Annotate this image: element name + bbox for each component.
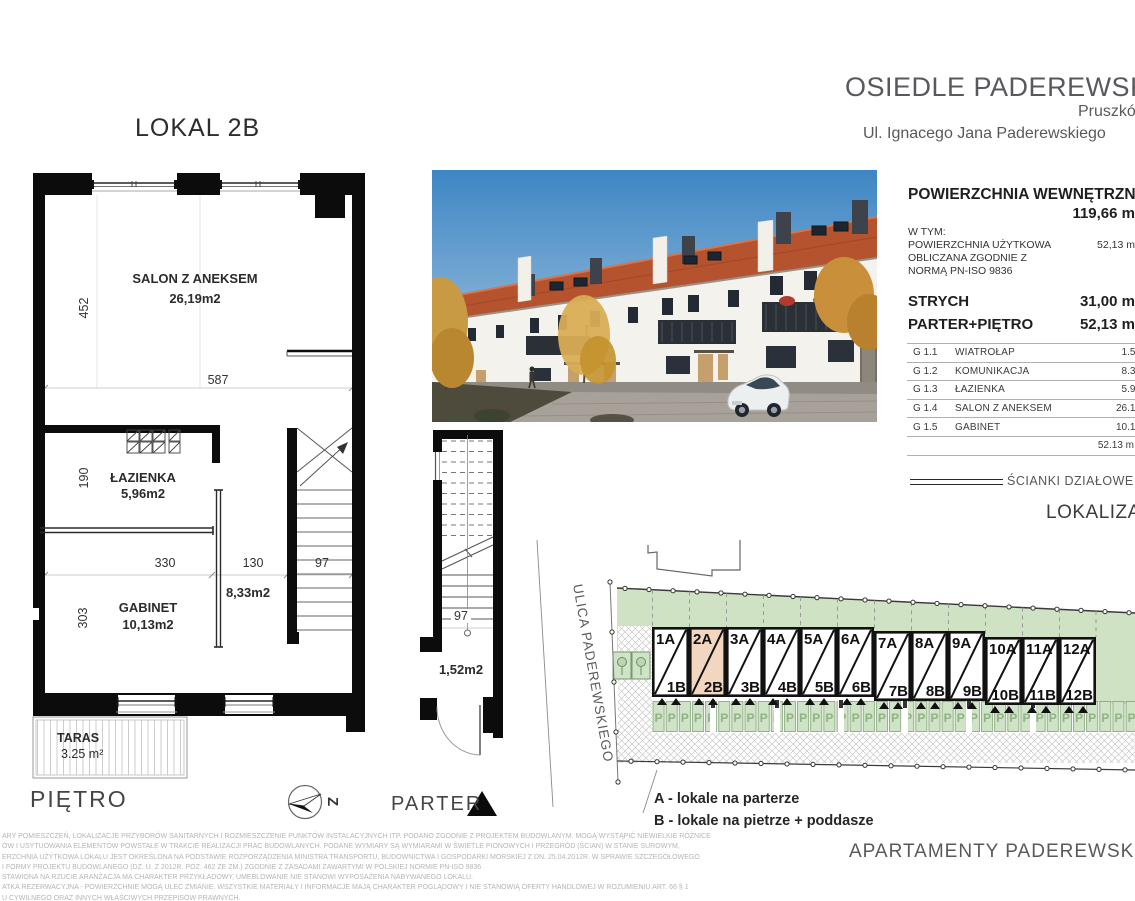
project-title: OSIEDLE PADEREWSKIEGO xyxy=(845,72,1135,103)
site-legend-a: A - lokale na parterze xyxy=(654,791,799,807)
parter-pietro-label: PARTER+PIĘTRO xyxy=(908,316,1033,333)
room-code: G 1.5 xyxy=(907,422,955,433)
area-table: G 1.1 WIATROŁAP 1.52 G 1.2 KOMUNIKACJA 8… xyxy=(907,343,1135,456)
room-area: 1.52 xyxy=(1095,347,1135,358)
disclaimer-line: I FORMY PROJEKTU BUDOWLANEGO (DZ. U. Z 2… xyxy=(2,863,711,873)
unit-label-b: 9B xyxy=(963,683,982,700)
wall-notch xyxy=(33,608,39,620)
unit-label-a: 11A xyxy=(1026,641,1053,658)
parter-label: PARTER xyxy=(391,793,482,816)
room-name: GABINET xyxy=(955,422,1095,433)
unit-label-b: 1B xyxy=(667,679,686,696)
room-code: G 1.3 xyxy=(907,384,955,395)
room-name: ŁAZIENKA xyxy=(955,384,1095,395)
unit-label-b: 12B xyxy=(1065,687,1093,704)
floor-plan-pietro: SALON Z ANEKSEM 26,19m2 ŁAZIENKA 5,96m2 … xyxy=(33,173,365,778)
room-komunikacja-area: 8,33m2 xyxy=(226,585,270,600)
usable-label-1: POWIERZCHNIA UŻYTKOWA xyxy=(908,239,1051,251)
staircase-parter xyxy=(442,435,493,636)
unit-label-a: 10A xyxy=(989,641,1017,658)
dim-587: 587 xyxy=(208,373,229,387)
outer-walls xyxy=(33,173,365,732)
room-gabinet-area: 10,13m2 xyxy=(122,617,173,632)
room-salon-area: 26,19m2 xyxy=(169,291,220,306)
unit-label-a: 12A xyxy=(1063,641,1091,658)
unit-label-a: 2A xyxy=(693,631,712,648)
disclaimer-line: ARY POMIESZCZEŃ, LOKALIZACJE PRZYBORÓW S… xyxy=(2,832,711,842)
room-code: G 1.4 xyxy=(907,403,955,414)
unit-label-a: 5A xyxy=(804,631,823,648)
partition-wall-legend-icon xyxy=(910,479,1003,485)
table-row: G 1.5 GABINET 10.13 xyxy=(907,417,1135,436)
unit-label-b: 5B xyxy=(815,679,834,696)
disclaimer-line: U CYWILNEGO ORAZ INNYCH WŁAŚCIWYCH PRZEP… xyxy=(2,894,711,901)
dim-190: 190 xyxy=(77,468,91,489)
unit-label-a: 6A xyxy=(841,631,860,648)
summary-total-value: 119,66 m xyxy=(1072,205,1135,222)
disclaimer-line: STAWIONA NA RZUCIE ARANŻACJA MA CHARAKTE… xyxy=(2,873,711,883)
window-bottom-2 xyxy=(223,695,275,714)
project-city: Pruszków xyxy=(1078,103,1135,121)
compass-west-letter: Z xyxy=(324,797,341,806)
boundary-line xyxy=(537,540,553,807)
footer-brand: APARTAMENTY PADEREWSKIEGO xyxy=(849,841,1135,863)
unit-label-b: 10B xyxy=(991,687,1019,704)
street-label: ULICA PADEREWSKIEGO xyxy=(570,583,616,764)
floor-plan-parter: 97 1,52m2 xyxy=(420,430,503,755)
unit-label-b: 11B xyxy=(1029,687,1056,704)
location-title: LOKALIZACJA xyxy=(1046,502,1135,524)
road-hatch xyxy=(617,733,1135,763)
unit-label-a: 1A xyxy=(656,631,675,648)
wiatrolap-area: 1,52m2 xyxy=(439,662,483,677)
dim-330: 330 xyxy=(155,556,176,570)
window-top-2 xyxy=(219,180,301,191)
unit-label-b: 2B xyxy=(704,679,723,696)
site-plan: P xyxy=(555,520,1135,801)
parter-pietro-value: 52,13 m xyxy=(1080,316,1135,333)
disclaimer-line: ATKA REZERWACYJNA - POWIERZCHNIE MOGĄ UL… xyxy=(2,883,711,893)
room-area: 10.13 xyxy=(1095,422,1135,433)
counter xyxy=(287,351,352,356)
terrace-area: 3.25 m² xyxy=(61,747,103,761)
strych-label: STRYCH xyxy=(908,293,969,310)
unit-label-b: 7B xyxy=(889,683,908,700)
photo-render xyxy=(412,170,891,427)
usable-value: 52,13 m xyxy=(1097,239,1135,251)
unit-label-b: 8B xyxy=(926,683,945,700)
parter-dim-97: 97 xyxy=(454,609,468,623)
room-code: G 1.2 xyxy=(907,366,955,377)
usable-label-3: NORMĄ PN-ISO 9836 xyxy=(908,265,1012,277)
room-area: 8.33 xyxy=(1095,366,1135,377)
room-salon-name: SALON Z ANEKSEM xyxy=(132,271,257,286)
table-total-row: 52.13 m xyxy=(907,436,1135,456)
table-row: G 1.4 SALON Z ANEKSEM 26.19 xyxy=(907,399,1135,418)
unit-label-a: 7A xyxy=(878,635,897,652)
window-bottom-1 xyxy=(116,695,177,714)
bathroom-fixtures-icon xyxy=(127,430,180,453)
brochure-page: SALON Z ANEKSEM 26,19m2 ŁAZIENKA 5,96m2 … xyxy=(0,0,1135,901)
room-area: 5.96 xyxy=(1095,384,1135,395)
strych-value: 31,00 m xyxy=(1080,293,1135,310)
lokal-title: LOKAL 2B xyxy=(135,114,260,143)
compass: Z xyxy=(289,786,342,819)
room-lazienka-area: 5,96m2 xyxy=(121,486,165,501)
site-hatch-left xyxy=(618,626,652,733)
rooms-total: 52.13 m xyxy=(1088,440,1135,451)
legal-disclaimer: ARY POMIESZCZEŃ, LOKALIZACJE PRZYBORÓW S… xyxy=(2,832,711,901)
unit-label-b: 3B xyxy=(741,679,760,696)
terrace xyxy=(33,717,187,778)
site-legend-b: B - lokale na pietrze + poddasze xyxy=(654,813,874,829)
window-top-1 xyxy=(91,180,177,191)
pietro-label: PIĘTRO xyxy=(30,786,128,813)
partition-wall-legend-label: ŚCIANKI DZIAŁOWE xyxy=(1007,474,1134,488)
unit-label-a: 4A xyxy=(767,631,786,648)
unit-label-a: 3A xyxy=(730,631,749,648)
table-row: G 1.2 KOMUNIKACJA 8.33 xyxy=(907,362,1135,381)
staircase-upper xyxy=(287,428,352,644)
project-street: Ul. Ignacego Jana Paderewskiego xyxy=(863,125,1106,143)
parter-window xyxy=(433,452,442,480)
disclaimer-line: ÓW I USYTUOWANIA ELEMENTÓW POWSTAŁE W TR… xyxy=(2,842,711,852)
room-lazienka-name: ŁAZIENKA xyxy=(110,470,176,485)
room-area: 26.19 xyxy=(1095,403,1135,414)
dim-303: 303 xyxy=(76,608,90,629)
disclaimer-line: ERZCHNIA UŻYTKOWA LOKALU JEST OKREŚLONA … xyxy=(2,853,711,863)
summary-subtitle: W TYM: xyxy=(908,226,946,238)
dim-452: 452 xyxy=(77,298,91,319)
usable-label-2: OBLICZANA ZGODNIE Z xyxy=(908,252,1027,264)
dim-97: 97 xyxy=(315,556,329,570)
room-name: WIATROŁAP xyxy=(955,347,1095,358)
photo-ground xyxy=(432,382,877,427)
neighbour-building-outline xyxy=(648,540,740,576)
unit-label-b: 6B xyxy=(852,679,871,696)
room-name: KOMUNIKACJA xyxy=(955,366,1095,377)
terrace-name: TARAS xyxy=(57,731,99,745)
parter-walls xyxy=(420,430,503,738)
room-gabinet-name: GABINET xyxy=(119,600,178,615)
summary-title: POWIERZCHNIA WEWNĘTRZNA xyxy=(908,186,1135,204)
dim-130: 130 xyxy=(243,556,264,570)
unit-label-b: 4B xyxy=(778,679,797,696)
table-row: G 1.3 ŁAZIENKA 5.96 xyxy=(907,380,1135,399)
room-name: SALON Z ANEKSEM xyxy=(955,403,1095,414)
entry-door xyxy=(437,705,480,755)
room-code: G 1.1 xyxy=(907,347,955,358)
unit-label-a: 8A xyxy=(915,635,934,652)
unit-label-a: 9A xyxy=(952,635,971,652)
table-row: G 1.1 WIATROŁAP 1.52 xyxy=(907,343,1135,362)
